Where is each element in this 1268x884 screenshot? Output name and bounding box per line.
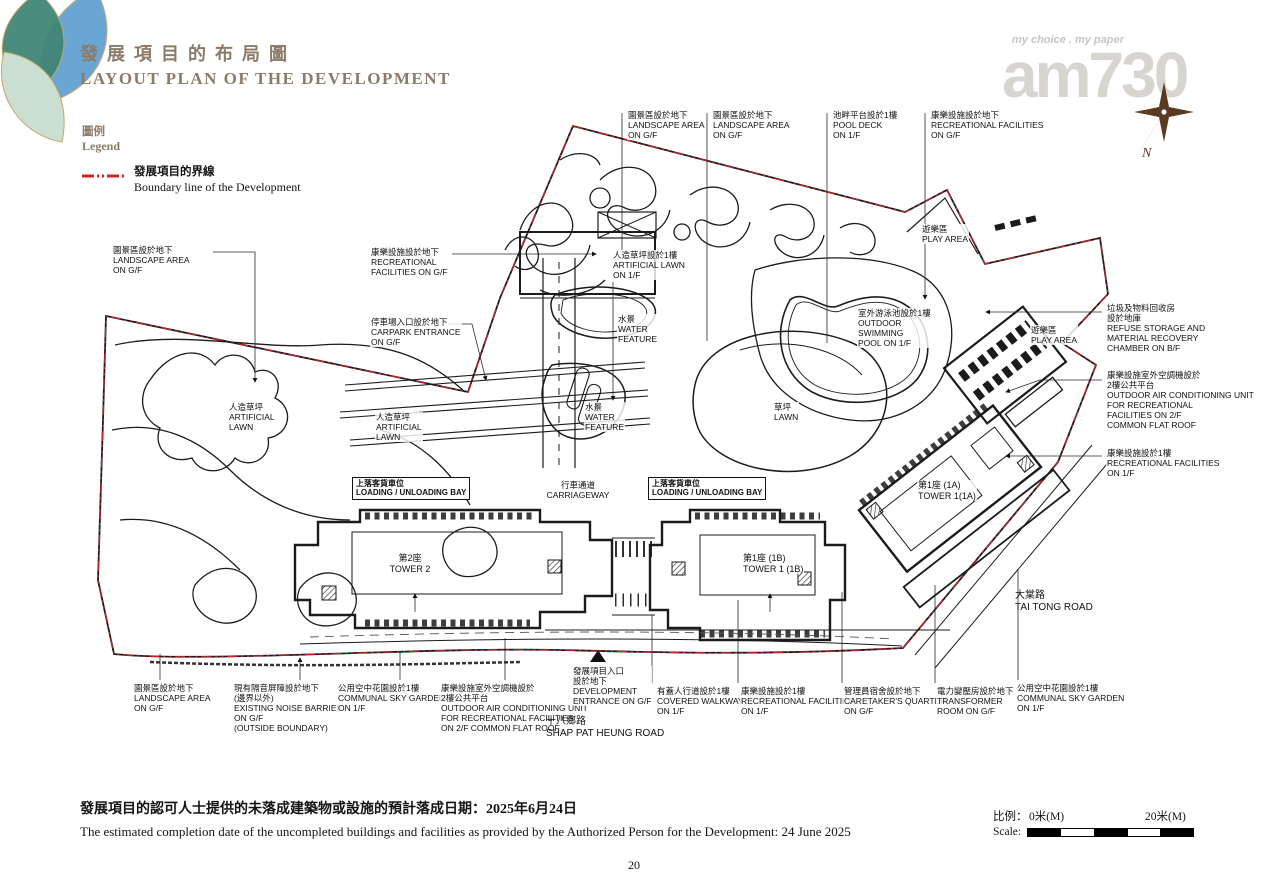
compass-north-label: N xyxy=(1142,146,1151,162)
anno-recreational-facilities-left: 康樂設施設於地下 RECREATIONAL FACILITIES ON G/F xyxy=(370,247,449,277)
anno-pool-deck: 池畔平台設於1樓 POOL DECK ON 1/F xyxy=(832,110,898,140)
anno-outdoor-swimming-pool: 室外游泳池設於1樓 OUTDOOR SWIMMING POOL ON 1/F xyxy=(857,308,932,348)
legend-title: 圖例 Legend xyxy=(82,123,120,154)
anno-water-feature-1: 水景 WATER FEATURE xyxy=(617,314,658,344)
boundary-line-symbol xyxy=(82,172,124,180)
page-title-en: LAYOUT PLAN OF THE DEVELOPMENT xyxy=(80,69,451,89)
anno-loading-bay-left: 上落客貨車位 LOADING / UNLOADING BAY xyxy=(352,477,470,500)
anno-caretakers-quarter: 管理員宿舍設於地下 CARETAKER'S QUARTER ON G/F xyxy=(843,686,947,716)
legend-title-en: Legend xyxy=(82,139,120,154)
legend-title-cn: 圖例 xyxy=(82,123,120,139)
tower-1b-building xyxy=(650,510,845,640)
anno-artificial-lawn-1f: 人造草坪設於1樓 ARTIFICIAL LAWN ON 1/F xyxy=(612,250,686,280)
scale-label-en: Scale: xyxy=(993,826,1021,838)
north-compass-icon xyxy=(1118,74,1210,174)
page-title-cn: 發展項目的布局圖 xyxy=(80,40,451,66)
scale-start-label: 0米(M) xyxy=(1029,808,1064,824)
anno-loading-bay-right: 上落客貨車位 LOADING / UNLOADING BAY xyxy=(648,477,766,500)
anno-recreational-facilities-bottom: 康樂設施設於1樓 RECREATIONAL FACILITIES ON 1/F xyxy=(740,686,854,716)
completion-note-cn: 發展項目的認可人士提供的未落成建築物或設施的預計落成日期：2025年6月24日 xyxy=(80,798,577,818)
scale-bar: 比例： 0米(M) 20米(M) Scale: xyxy=(993,808,1208,838)
legend-item-boundary: 發展項目的界線 Boundary line of the Development xyxy=(82,163,301,195)
tower-2-building xyxy=(295,510,612,628)
anno-tower-1a: 第1座 (1A) TOWER 1(1A) xyxy=(917,480,977,501)
anno-landscape-area-left: 園景區設於地下 LANDSCAPE AREA ON G/F xyxy=(112,245,191,275)
tower-1a-building xyxy=(847,397,1069,607)
anno-refuse-storage: 垃圾及物料回收房 設於地庫 REFUSE STORAGE AND MATERIA… xyxy=(1106,303,1206,353)
page-number: 20 xyxy=(0,858,1268,873)
anno-play-area-1: 遊樂區 PLAY AREA xyxy=(921,224,969,244)
anno-development-entrance: 發展項目入口 設於地下 DEVELOPMENT ENTRANCE ON G/F xyxy=(572,666,652,706)
scale-bar-graphic xyxy=(1027,828,1194,837)
landscape-maze-top xyxy=(505,154,875,296)
scale-label-cn: 比例： xyxy=(993,808,1028,824)
anno-noise-barrier: 現有隔音屏障設於地下 (邊界以外) EXISTING NOISE BARRIER… xyxy=(233,683,344,733)
anno-tower-1b: 第1座 (1B) TOWER 1 (1B) xyxy=(742,553,804,574)
anno-carriageway: 行車通道 CARRIAGEWAY xyxy=(546,480,611,500)
development-boundary xyxy=(98,126,1108,657)
anno-artificial-lawn-left: 人造草坪 ARTIFICIAL LAWN xyxy=(228,402,276,432)
anno-shap-pat-heung-road: 十八鄉路 SHAP PAT HEUNG ROAD xyxy=(545,716,665,740)
anno-water-feature-2: 水景 WATER FEATURE xyxy=(584,402,625,432)
anno-recreational-facilities-right: 康樂設施設於1樓 RECREATIONAL FACILITIES ON 1/F xyxy=(1106,448,1220,478)
anno-landscape-area-top-2: 園景區設於地下 LANDSCAPE AREA ON G/F xyxy=(712,110,791,140)
anno-tai-tong-road: 大棠路 TAI TONG ROAD xyxy=(1014,590,1094,614)
legend-boundary-cn: 發展項目的界線 xyxy=(134,163,301,179)
development-entrance-marker xyxy=(590,650,606,662)
anno-carpark-entrance: 停車場入口設於地下 CARPARK ENTRANCE ON G/F xyxy=(370,317,462,347)
anno-tower-2: 第2座 TOWER 2 xyxy=(389,553,432,574)
anno-landscape-area-top-1: 園景區設於地下 LANDSCAPE AREA ON G/F xyxy=(627,110,706,140)
anno-recreational-facilities-top: 康樂設施設於地下 RECREATIONAL FACILITIES ON G/F xyxy=(930,110,1044,140)
brochure-page: { "header": { "title_cn": "發展項目的布局圖", "t… xyxy=(0,0,1268,884)
page-header: 發展項目的布局圖 LAYOUT PLAN OF THE DEVELOPMENT xyxy=(80,40,451,89)
legend-boundary-en: Boundary line of the Development xyxy=(134,180,301,195)
completion-note-en: The estimated completion date of the unc… xyxy=(80,824,851,840)
scale-end-label: 20米(M) xyxy=(1145,808,1186,824)
anno-sky-garden-right: 公用空中花園設於1樓 COMMUNAL SKY GARDEN ON 1/F xyxy=(1016,683,1125,713)
anno-ac-unit-right: 康樂設施室外空調機設於 2樓公共平台 OUTDOOR AIR CONDITION… xyxy=(1106,370,1255,430)
leader-lines xyxy=(160,113,1102,683)
anno-sky-garden-left: 公用空中花園設於1樓 COMMUNAL SKY GARDEN ON 1/F xyxy=(337,683,446,713)
anno-play-area-2: 遊樂區 PLAY AREA xyxy=(1030,325,1078,345)
anno-artificial-lawn-mid: 人造草坪 ARTIFICIAL LAWN xyxy=(375,412,423,442)
anno-landscape-area-bottom: 園景區設於地下 LANDSCAPE AREA ON G/F xyxy=(133,683,212,713)
anno-transformer-room: 電力變壓房設於地下 TRANSFORMER ROOM ON G/F xyxy=(936,686,1015,716)
anno-covered-walkway: 有蓋人行道設於1樓 COVERED WALKWAY ON 1/F xyxy=(656,686,745,716)
anno-lawn: 草坪 LAWN xyxy=(773,402,799,422)
